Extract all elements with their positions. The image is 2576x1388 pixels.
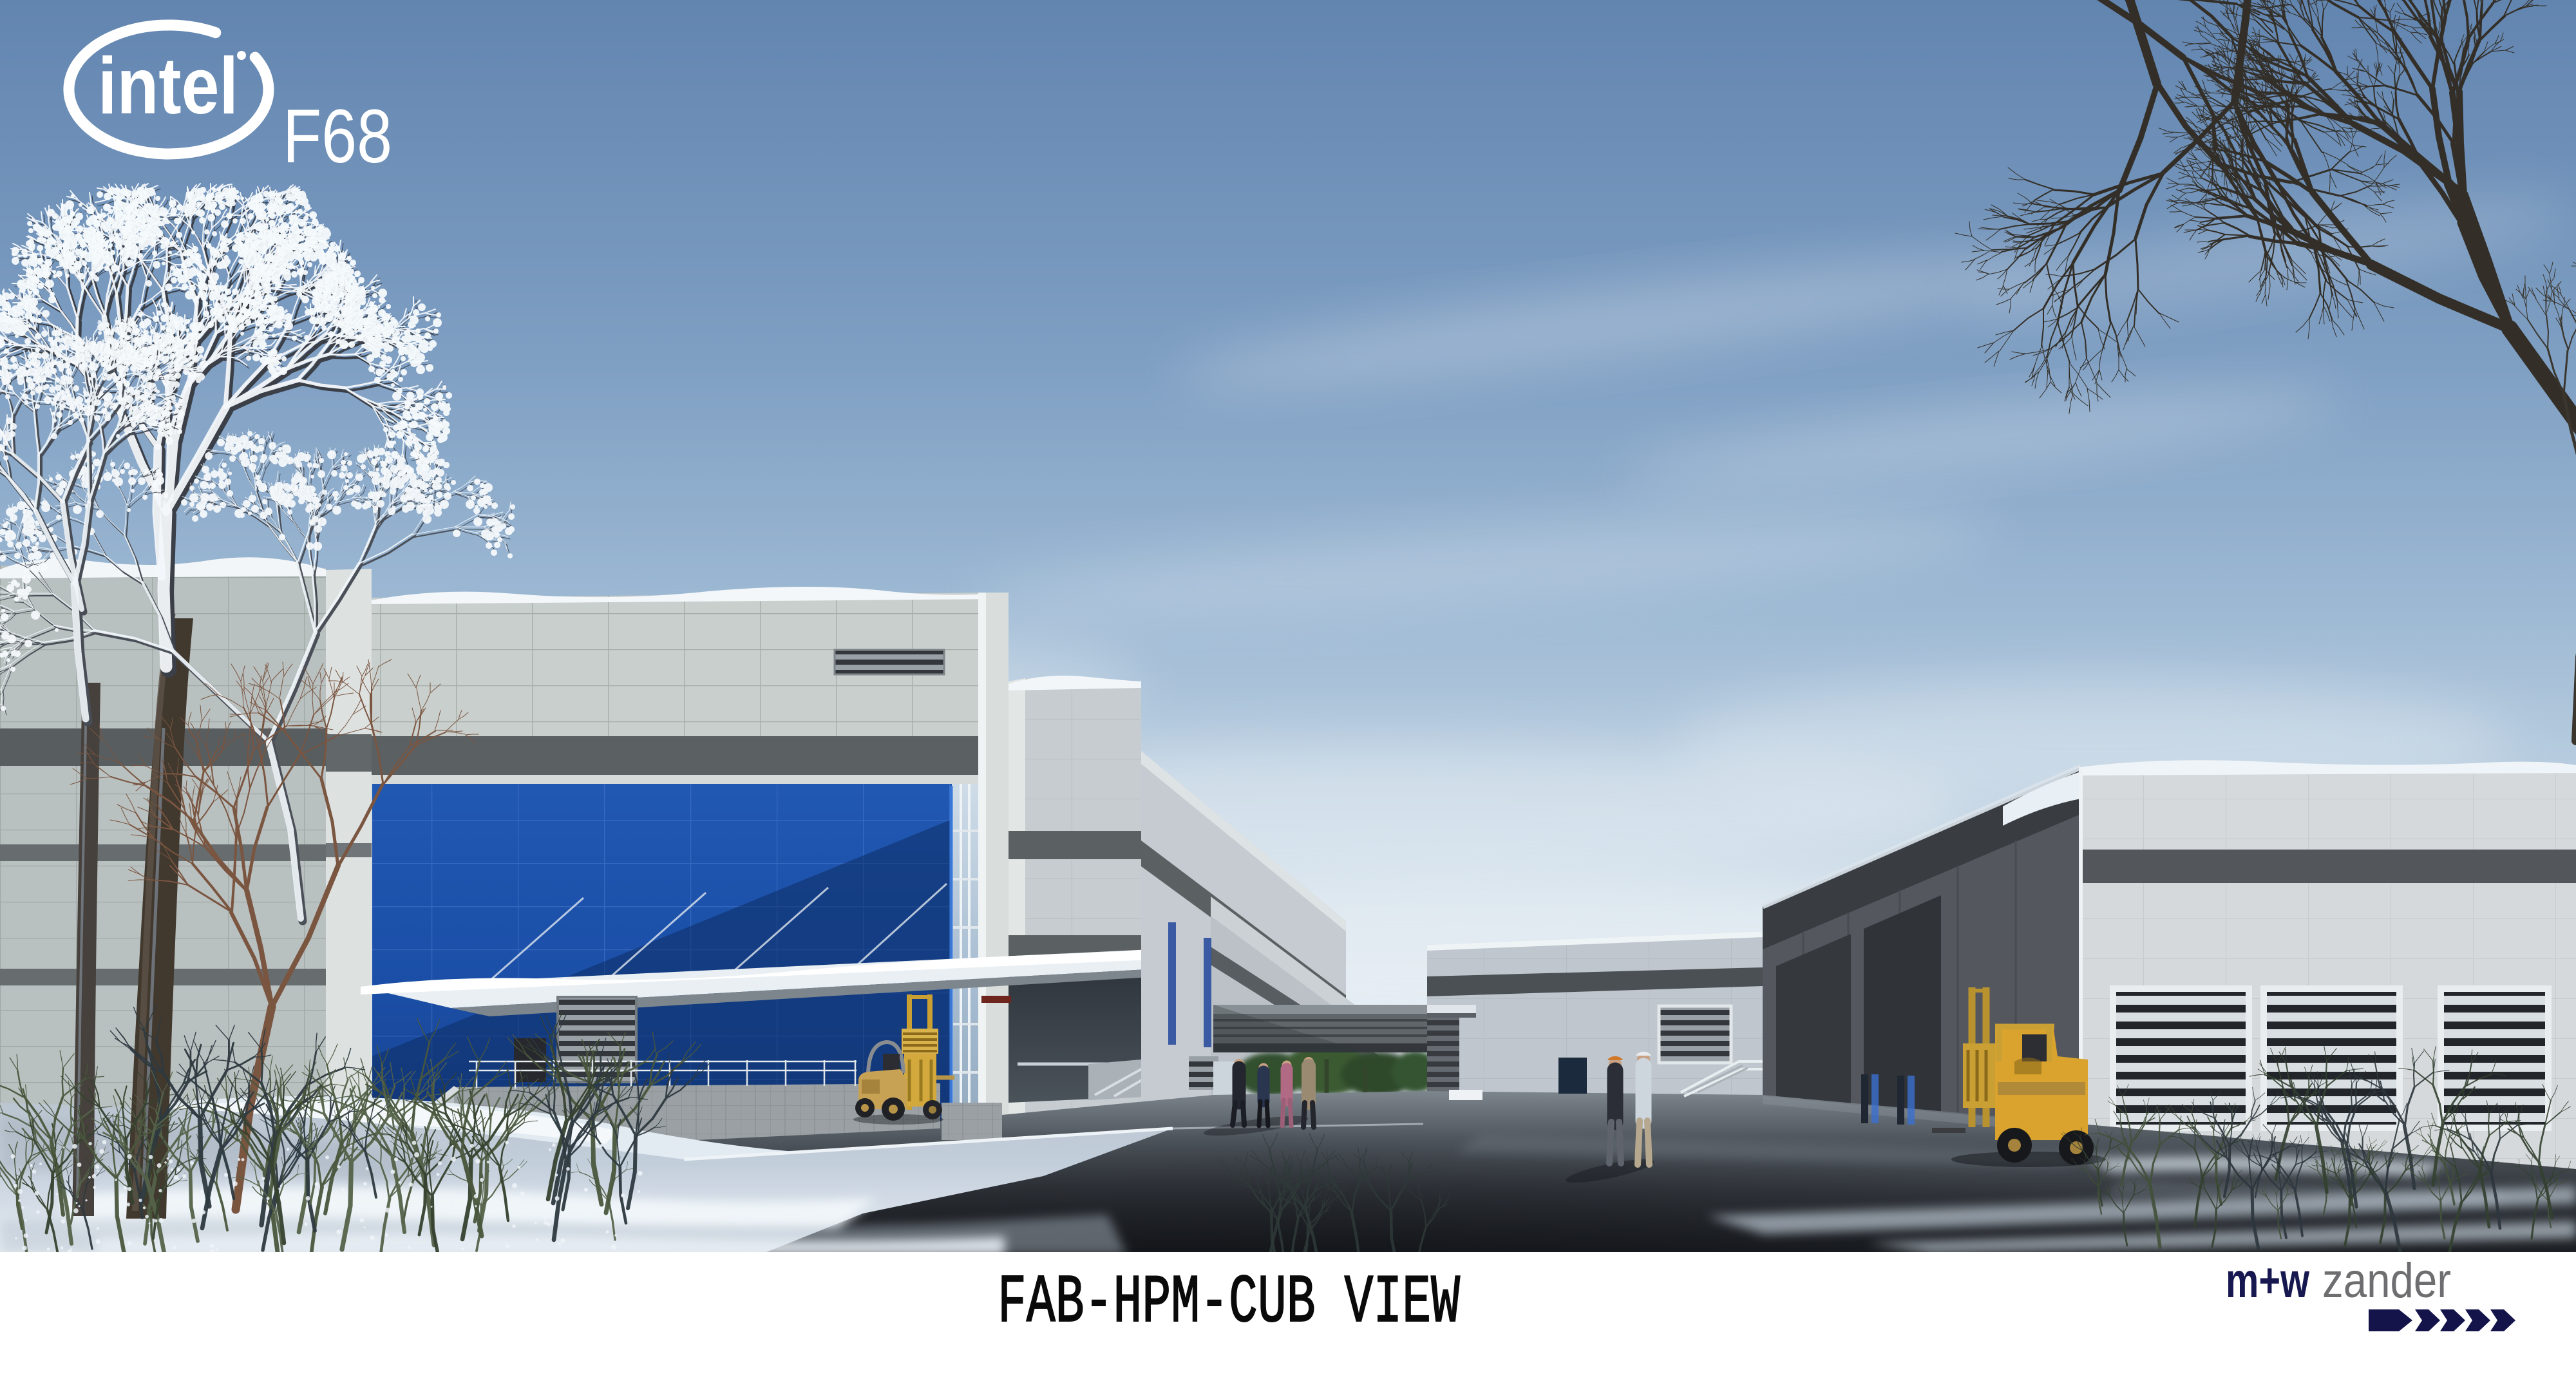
svg-text:F68: F68 bbox=[283, 94, 392, 179]
svg-text:m+w: m+w bbox=[2226, 1253, 2310, 1308]
svg-text:zander: zander bbox=[2322, 1253, 2451, 1308]
svg-text:FAB-HPM-CUB VIEW: FAB-HPM-CUB VIEW bbox=[998, 1264, 1460, 1342]
svg-text:intel: intel bbox=[98, 42, 238, 131]
